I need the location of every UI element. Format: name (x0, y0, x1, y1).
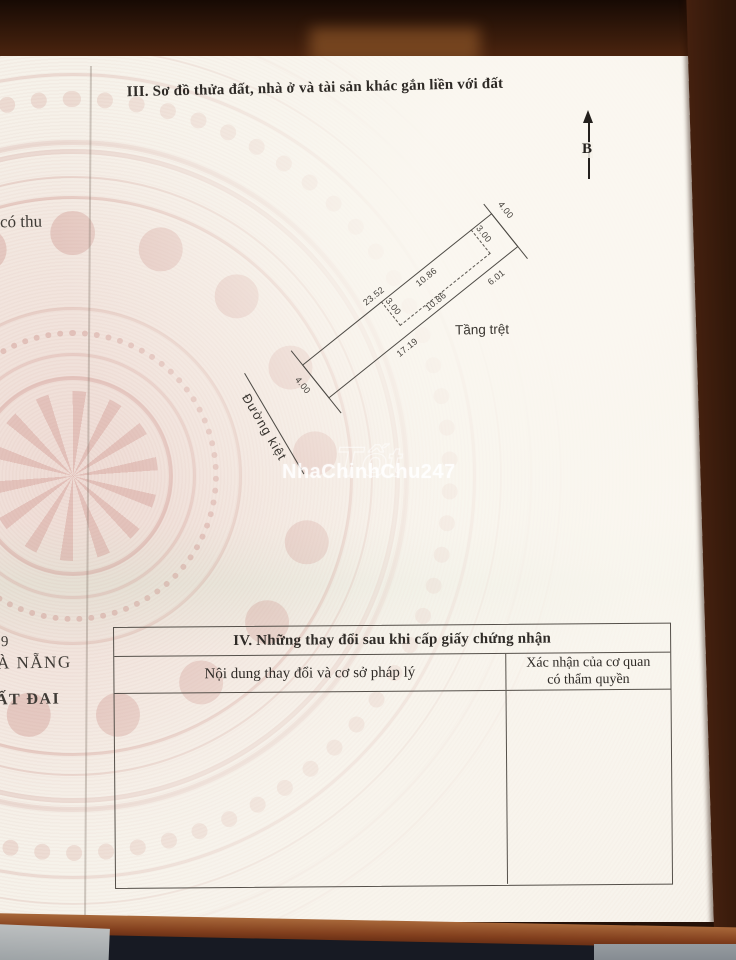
section4-header-row: Nội dung thay đổi và cơ sở pháp lý Xác n… (114, 653, 670, 694)
edge-text-city: À NẴNG (0, 652, 72, 673)
north-arrow-head (583, 110, 593, 123)
floor-right-gray (594, 944, 736, 960)
floor-left-gray (0, 924, 110, 960)
photo-of-land-certificate: III. Sơ đồ thửa đất, nhà ở và tài sản kh… (0, 0, 736, 960)
section4-col1-header: Nội dung thay đổi và cơ sở pháp lý (114, 654, 506, 693)
section4-empty-body (115, 690, 672, 887)
edge-text-land: ẤT ĐAI (0, 690, 60, 709)
ground-floor-label: Tầng trệt (455, 322, 509, 338)
section4-title: IV. Những thay đổi sau khi cấp giấy chứn… (114, 624, 670, 657)
section4-table: IV. Những thay đổi sau khi cấp giấy chứn… (113, 623, 673, 889)
watermark: NhaChinhChu247 (282, 461, 456, 484)
section4-body-col2 (507, 690, 673, 884)
north-label: B (581, 142, 593, 158)
section4-col2-header: Xác nhận của cơ quan có thẩm quyền (506, 653, 670, 690)
edge-text-digit: 9 (1, 634, 9, 651)
edge-text-fee: có thu (0, 212, 42, 233)
section4-body-col1 (115, 691, 509, 887)
